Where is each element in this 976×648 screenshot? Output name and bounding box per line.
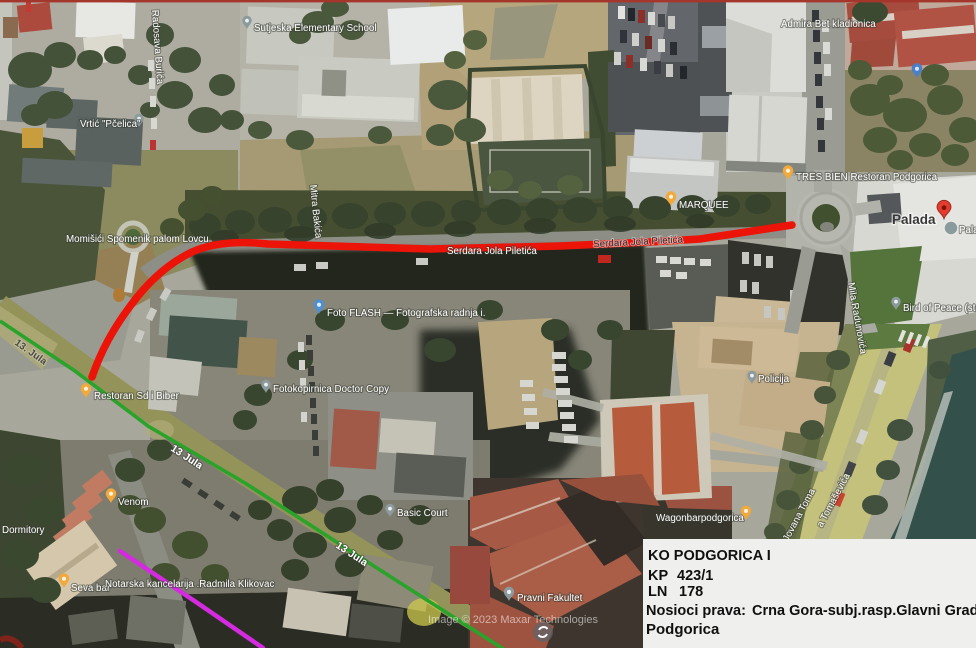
svg-text:TRES BIEN Restoran Podgorica: TRES BIEN Restoran Podgorica — [796, 172, 938, 183]
svg-text:Venom: Venom — [118, 497, 149, 508]
svg-text:Notarska kancelarija .Radmila: Notarska kancelarija .Radmila Klikovac — [105, 579, 274, 590]
svg-text:Palad: Palad — [959, 225, 976, 236]
svg-text:Foto FLASH — Fotografska radnj: Foto FLASH — Fotografska radnja i. — [327, 308, 485, 319]
svg-text:KO PODGORICA I: KO PODGORICA I — [648, 548, 771, 564]
svg-text:Restoran Sd i Biber: Restoran Sd i Biber — [94, 391, 180, 402]
svg-text:178: 178 — [679, 584, 703, 600]
svg-text:Sutjeska Elementary School: Sutjeska Elementary School — [254, 23, 377, 34]
svg-text:Pravni Fakultet: Pravni Fakultet — [517, 593, 583, 604]
svg-text:Serdara Jola Piletića: Serdara Jola Piletića — [447, 246, 537, 257]
svg-text:KP: KP — [648, 568, 668, 584]
svg-text:423/1: 423/1 — [677, 568, 713, 584]
svg-text:LN: LN — [648, 584, 667, 600]
svg-text:Wagonbarpodgorica: Wagonbarpodgorica — [656, 513, 744, 524]
svg-text:Image © 2023 Maxar Technologie: Image © 2023 Maxar Technologies — [428, 614, 598, 626]
svg-text:Bird of Peace (sta: Bird of Peace (sta — [903, 303, 976, 314]
svg-text:Fotokopirnica Doctor Copy: Fotokopirnica Doctor Copy — [273, 384, 389, 395]
svg-text:Nosioci prava:: Nosioci prava: — [646, 603, 746, 619]
svg-text:Dormitory: Dormitory — [2, 525, 45, 536]
svg-text:Momišići Spomenik palom Lovcu: Momišići Spomenik palom Lovcu — [66, 234, 209, 245]
svg-text:Basic Court: Basic Court — [397, 508, 448, 519]
svg-text:Podgorica: Podgorica — [646, 621, 720, 638]
svg-text:Vrtić "Pčelica": Vrtić "Pčelica" — [80, 119, 141, 130]
svg-text:Palada: Palada — [892, 212, 936, 227]
svg-text:Crna Gora-subj.rasp.Glavni Gra: Crna Gora-subj.rasp.Glavni Grad — [752, 603, 976, 619]
svg-text:Policija: Policija — [758, 374, 790, 385]
svg-text:MARQUEE: MARQUEE — [679, 200, 729, 211]
svg-text:Admira Bet kladionica: Admira Bet kladionica — [781, 19, 876, 30]
